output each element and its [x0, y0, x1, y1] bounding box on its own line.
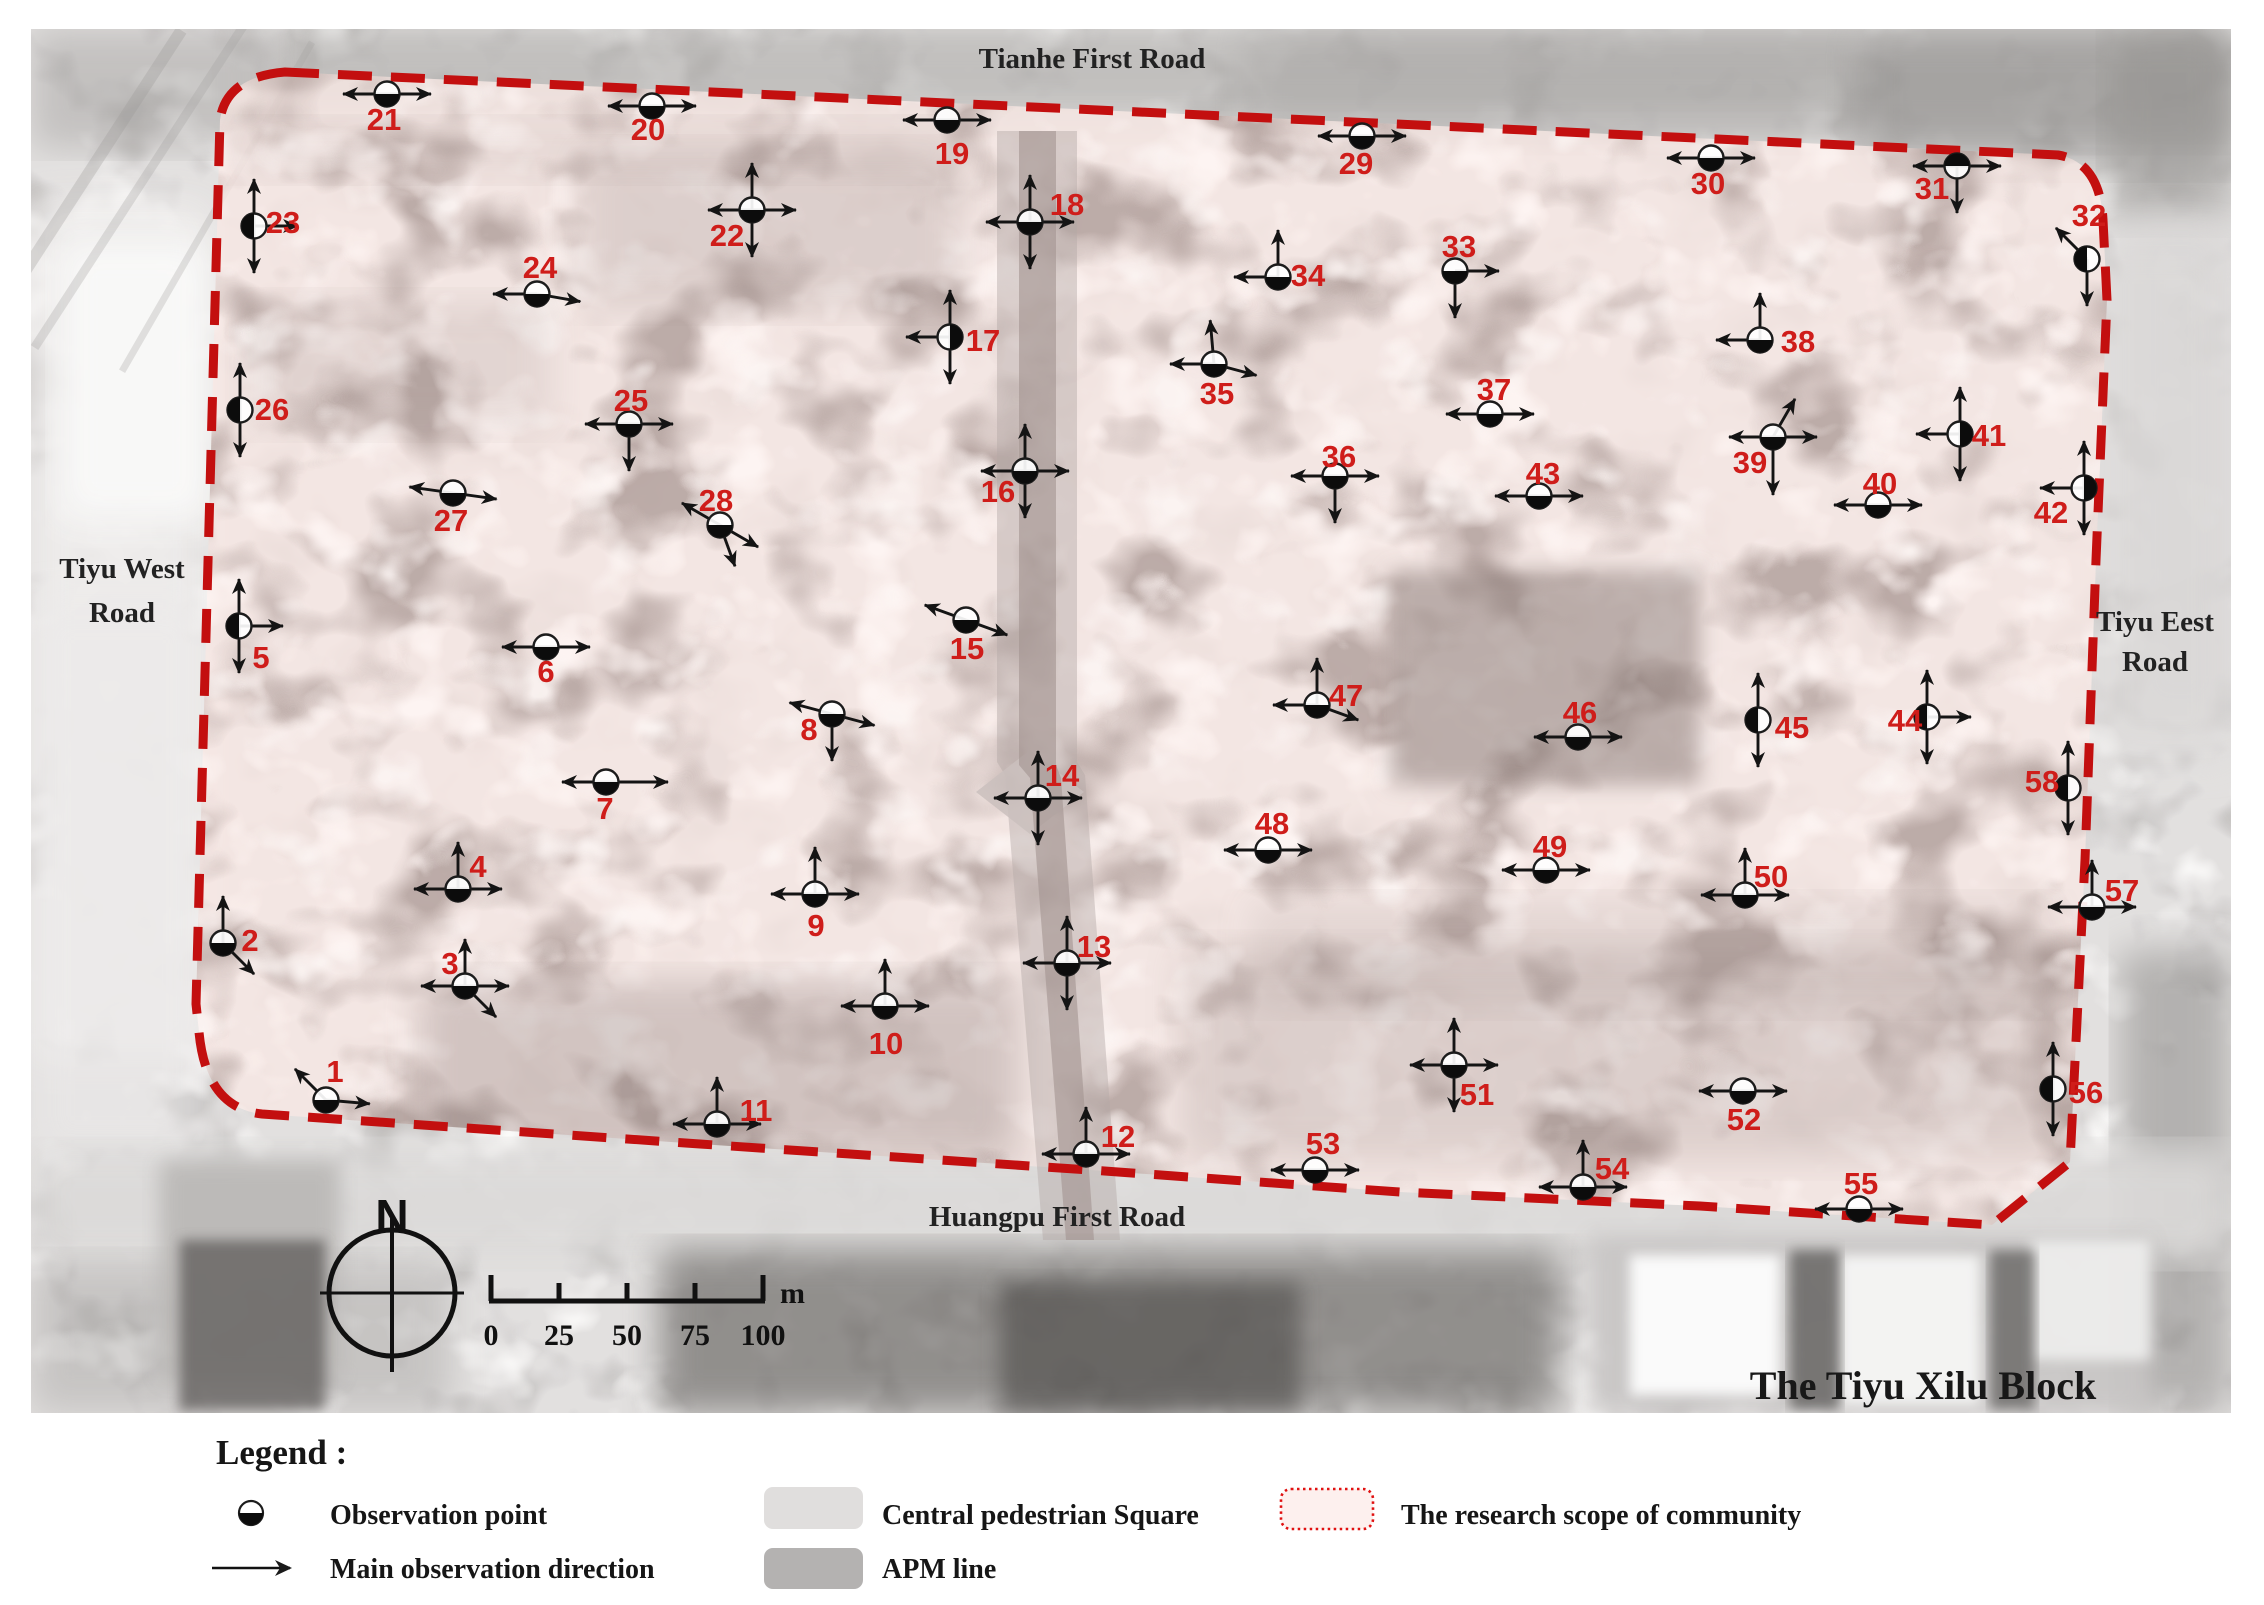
svg-text:56: 56	[2069, 1075, 2103, 1110]
svg-text:30: 30	[1691, 166, 1725, 201]
svg-text:39: 39	[1733, 445, 1767, 480]
svg-text:55: 55	[1844, 1166, 1878, 1201]
svg-text:Main observation direction: Main observation direction	[330, 1554, 655, 1585]
svg-text:54: 54	[1595, 1151, 1630, 1186]
svg-text:50: 50	[1754, 859, 1788, 894]
svg-text:28: 28	[699, 483, 733, 518]
svg-text:4: 4	[469, 849, 487, 884]
svg-text:51: 51	[1460, 1077, 1494, 1112]
svg-text:31: 31	[1915, 171, 1949, 206]
svg-text:Tiyu Eest: Tiyu Eest	[2096, 606, 2214, 638]
svg-text:40: 40	[1863, 466, 1897, 501]
svg-text:16: 16	[981, 474, 1015, 509]
svg-text:Huangpu First Road: Huangpu First Road	[929, 1201, 1185, 1233]
svg-text:38: 38	[1781, 324, 1815, 359]
svg-text:46: 46	[1563, 695, 1597, 730]
svg-text:24: 24	[523, 250, 558, 285]
svg-text:20: 20	[631, 112, 665, 147]
svg-text:8: 8	[800, 712, 817, 747]
svg-text:25: 25	[544, 1319, 574, 1352]
svg-text:45: 45	[1775, 710, 1809, 745]
svg-text:36: 36	[1322, 439, 1356, 474]
svg-text:50: 50	[612, 1319, 642, 1352]
svg-text:Tianhe First Road: Tianhe First Road	[979, 43, 1206, 75]
svg-text:Central pedestrian Square: Central pedestrian Square	[882, 1500, 1199, 1531]
svg-text:12: 12	[1101, 1119, 1135, 1154]
svg-text:44: 44	[1888, 703, 1923, 738]
svg-text:47: 47	[1329, 678, 1363, 713]
svg-text:57: 57	[2105, 873, 2139, 908]
svg-text:15: 15	[950, 631, 984, 666]
svg-text:Road: Road	[89, 597, 155, 629]
svg-text:2: 2	[241, 923, 258, 958]
svg-text:43: 43	[1526, 456, 1560, 491]
svg-text:5: 5	[252, 640, 269, 675]
svg-text:m: m	[780, 1277, 805, 1310]
svg-text:58: 58	[2025, 764, 2059, 799]
svg-text:49: 49	[1533, 829, 1567, 864]
svg-text:42: 42	[2034, 495, 2068, 530]
svg-text:Road: Road	[2122, 646, 2188, 678]
svg-text:27: 27	[434, 503, 468, 538]
svg-text:0: 0	[484, 1319, 499, 1352]
svg-text:Tiyu West: Tiyu West	[59, 553, 185, 585]
svg-text:17: 17	[966, 323, 1000, 358]
svg-text:11: 11	[740, 1093, 773, 1128]
svg-text:29: 29	[1339, 146, 1373, 181]
svg-text:32: 32	[2072, 198, 2106, 233]
svg-text:33: 33	[1442, 229, 1476, 264]
svg-text:22: 22	[710, 218, 744, 253]
svg-text:75: 75	[680, 1319, 710, 1352]
svg-text:3: 3	[441, 946, 458, 981]
svg-text:53: 53	[1306, 1126, 1340, 1161]
svg-text:APM line: APM line	[882, 1554, 996, 1585]
svg-text:1: 1	[326, 1054, 343, 1089]
svg-text:14: 14	[1045, 758, 1080, 793]
svg-text:23: 23	[266, 205, 300, 240]
svg-text:10: 10	[869, 1026, 903, 1061]
svg-text:41: 41	[1972, 418, 2006, 453]
svg-text:26: 26	[255, 392, 289, 427]
svg-text:34: 34	[1291, 258, 1326, 293]
svg-text:25: 25	[614, 383, 648, 418]
svg-text:35: 35	[1200, 376, 1234, 411]
svg-text:52: 52	[1727, 1102, 1761, 1137]
svg-text:The Tiyu Xilu Block: The Tiyu Xilu Block	[1750, 1363, 2097, 1408]
svg-text:Observation point: Observation point	[330, 1500, 548, 1531]
svg-text:48: 48	[1255, 806, 1289, 841]
svg-text:37: 37	[1477, 372, 1511, 407]
svg-text:13: 13	[1077, 929, 1111, 964]
svg-text:7: 7	[596, 791, 613, 826]
svg-text:100: 100	[741, 1319, 786, 1352]
svg-text:Legend :: Legend :	[216, 1433, 347, 1472]
svg-text:6: 6	[537, 654, 554, 689]
svg-text:18: 18	[1050, 187, 1084, 222]
svg-text:9: 9	[807, 908, 824, 943]
svg-text:The research scope of communi: The research scope of community	[1401, 1500, 1801, 1531]
svg-text:19: 19	[935, 136, 969, 171]
svg-text:21: 21	[367, 102, 401, 137]
